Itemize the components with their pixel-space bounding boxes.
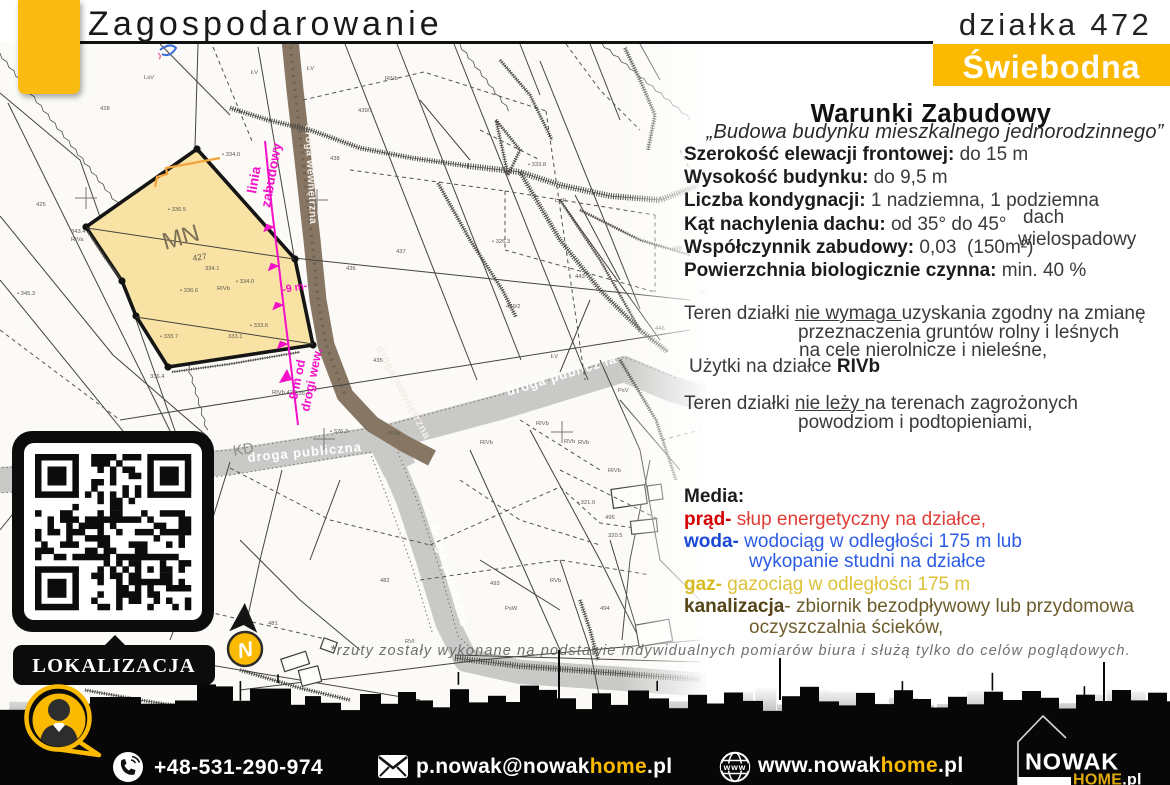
svg-text:HOME.pl: HOME.pl [1073, 772, 1142, 785]
svg-text:www: www [723, 762, 747, 772]
